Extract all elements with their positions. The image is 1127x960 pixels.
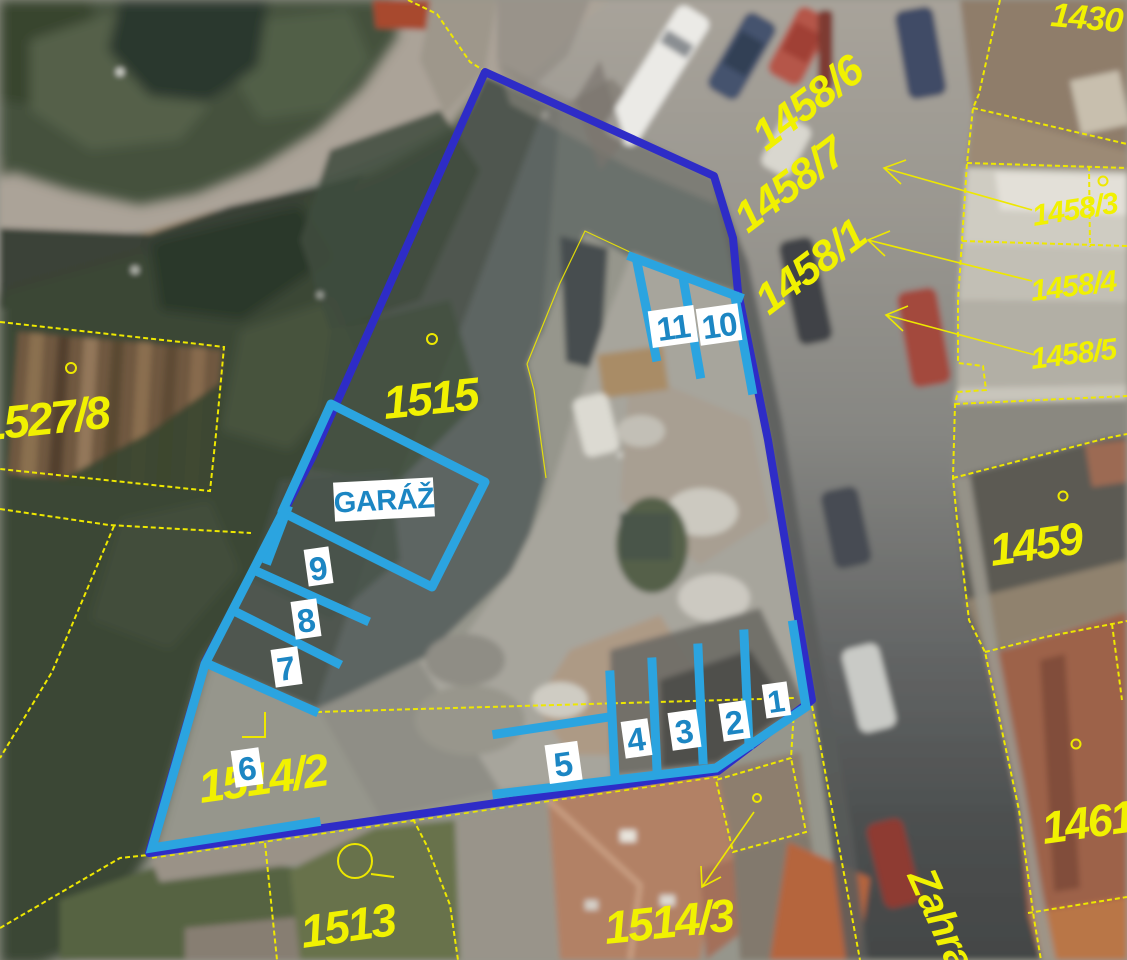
svg-text:1430: 1430 <box>1049 0 1125 40</box>
svg-text:10: 10 <box>699 305 739 346</box>
svg-text:1515: 1515 <box>381 367 484 429</box>
svg-text:GARÁŽ: GARÁŽ <box>333 480 435 519</box>
svg-text:11: 11 <box>654 307 692 348</box>
